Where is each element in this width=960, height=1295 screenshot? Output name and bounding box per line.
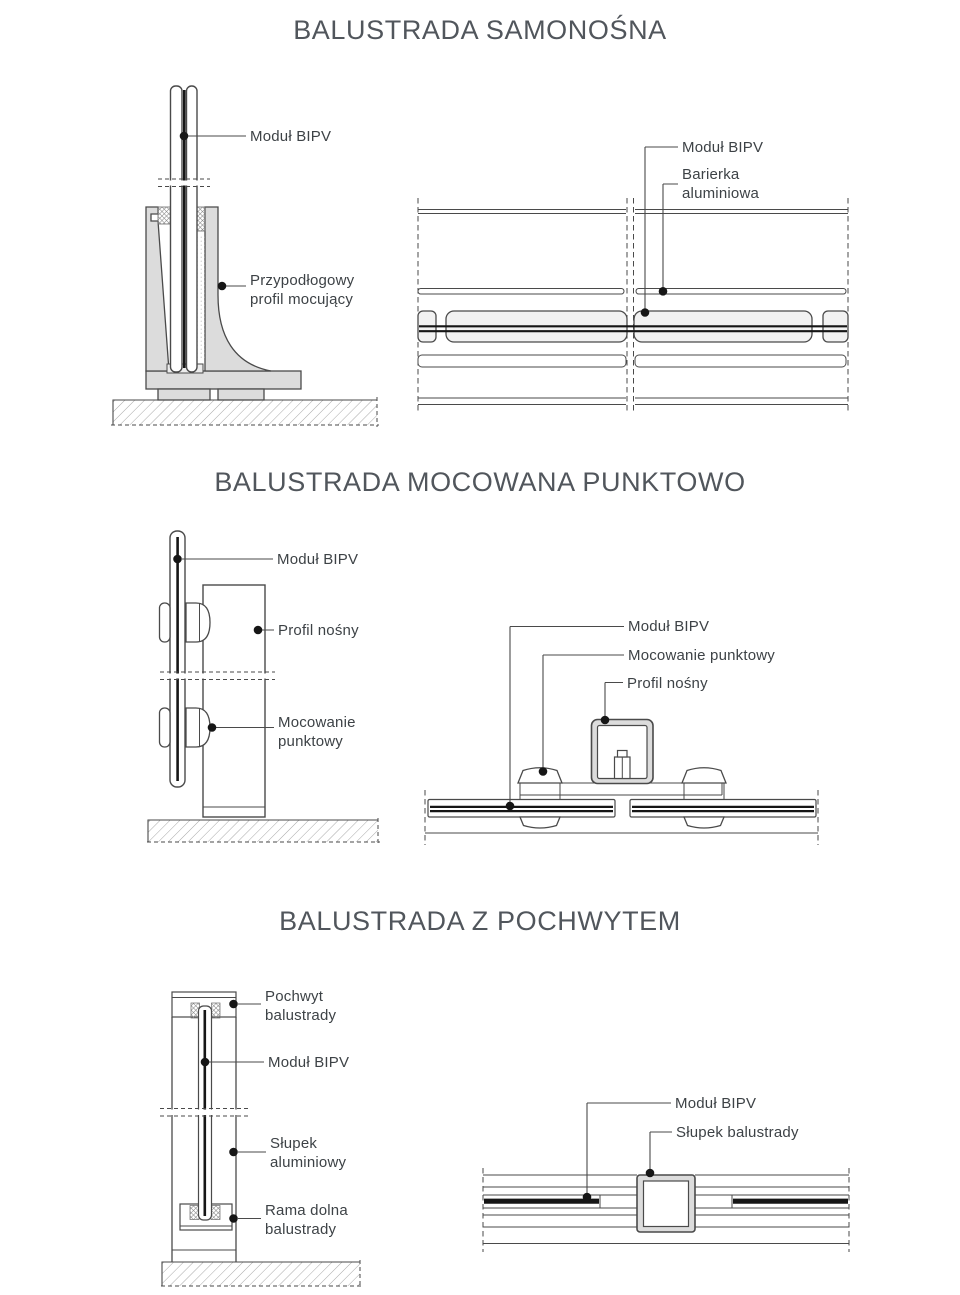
label-s3-right-slupek-balustrady: Słupek balustrady [676,1123,799,1142]
section-title-samonosna: BALUSTRADA SAMONOŚNA [0,15,960,46]
bipv-balustrade-diagram-page: BALUSTRADA SAMONOŚNA BALUSTRADA MOCOWANA… [0,0,960,1295]
label-line: punktowy [278,732,356,751]
label-line: Pochwyt [265,987,336,1006]
label-s3-left-slupek-aluminiowy: Słupek aluminiowy [270,1134,346,1172]
section-title-punktowo: BALUSTRADA MOCOWANA PUNKTOWO [0,467,960,498]
label-s1-right-modul-bipv: Moduł BIPV [682,138,763,157]
label-line: Barierka [682,165,759,184]
label-s3-left-pochwyt-balustrady: Pochwyt balustrady [265,987,336,1025]
drawing-punktowo-section-view [147,531,380,845]
label-s3-left-rama-dolna: Rama dolna balustrady [265,1201,348,1239]
label-s1-left-modul-bipv: Moduł BIPV [250,127,331,146]
label-line: Mocowanie [278,713,356,732]
label-s3-right-modul-bipv: Moduł BIPV [675,1094,756,1113]
label-line: balustrady [265,1006,336,1025]
label-s2-right-profil-nosny: Profil nośny [627,674,708,693]
label-line: aluminiowa [682,184,759,203]
label-line: Przypodłogowy [250,271,354,290]
label-line: Rama dolna [265,1201,348,1220]
section-title-pochwytem: BALUSTRADA Z POCHWYTEM [0,906,960,937]
label-s1-left-profil-mocujacy: Przypodłogowy profil mocujący [250,271,354,309]
drawing-samonosna-section-view [111,86,379,427]
label-s2-right-modul-bipv: Moduł BIPV [628,617,709,636]
label-s2-right-mocowanie-punktowy: Mocowanie punktowy [628,646,775,665]
label-line: balustrady [265,1220,348,1239]
label-s2-left-mocowanie-punktowy: Mocowanie punktowy [278,713,356,751]
technical-drawing-canvas [0,0,960,1295]
label-line: profil mocujący [250,290,354,309]
label-s2-left-profil-nosny: Profil nośny [278,621,359,640]
label-s2-left-modul-bipv: Moduł BIPV [277,550,358,569]
label-line: aluminiowy [270,1153,346,1172]
label-s3-left-modul-bipv: Moduł BIPV [268,1053,349,1072]
drawing-samonosna-plan-view [418,147,848,413]
label-line: Słupek [270,1134,346,1153]
label-s1-right-barierka-aluminiowa: Barierka aluminiowa [682,165,759,203]
